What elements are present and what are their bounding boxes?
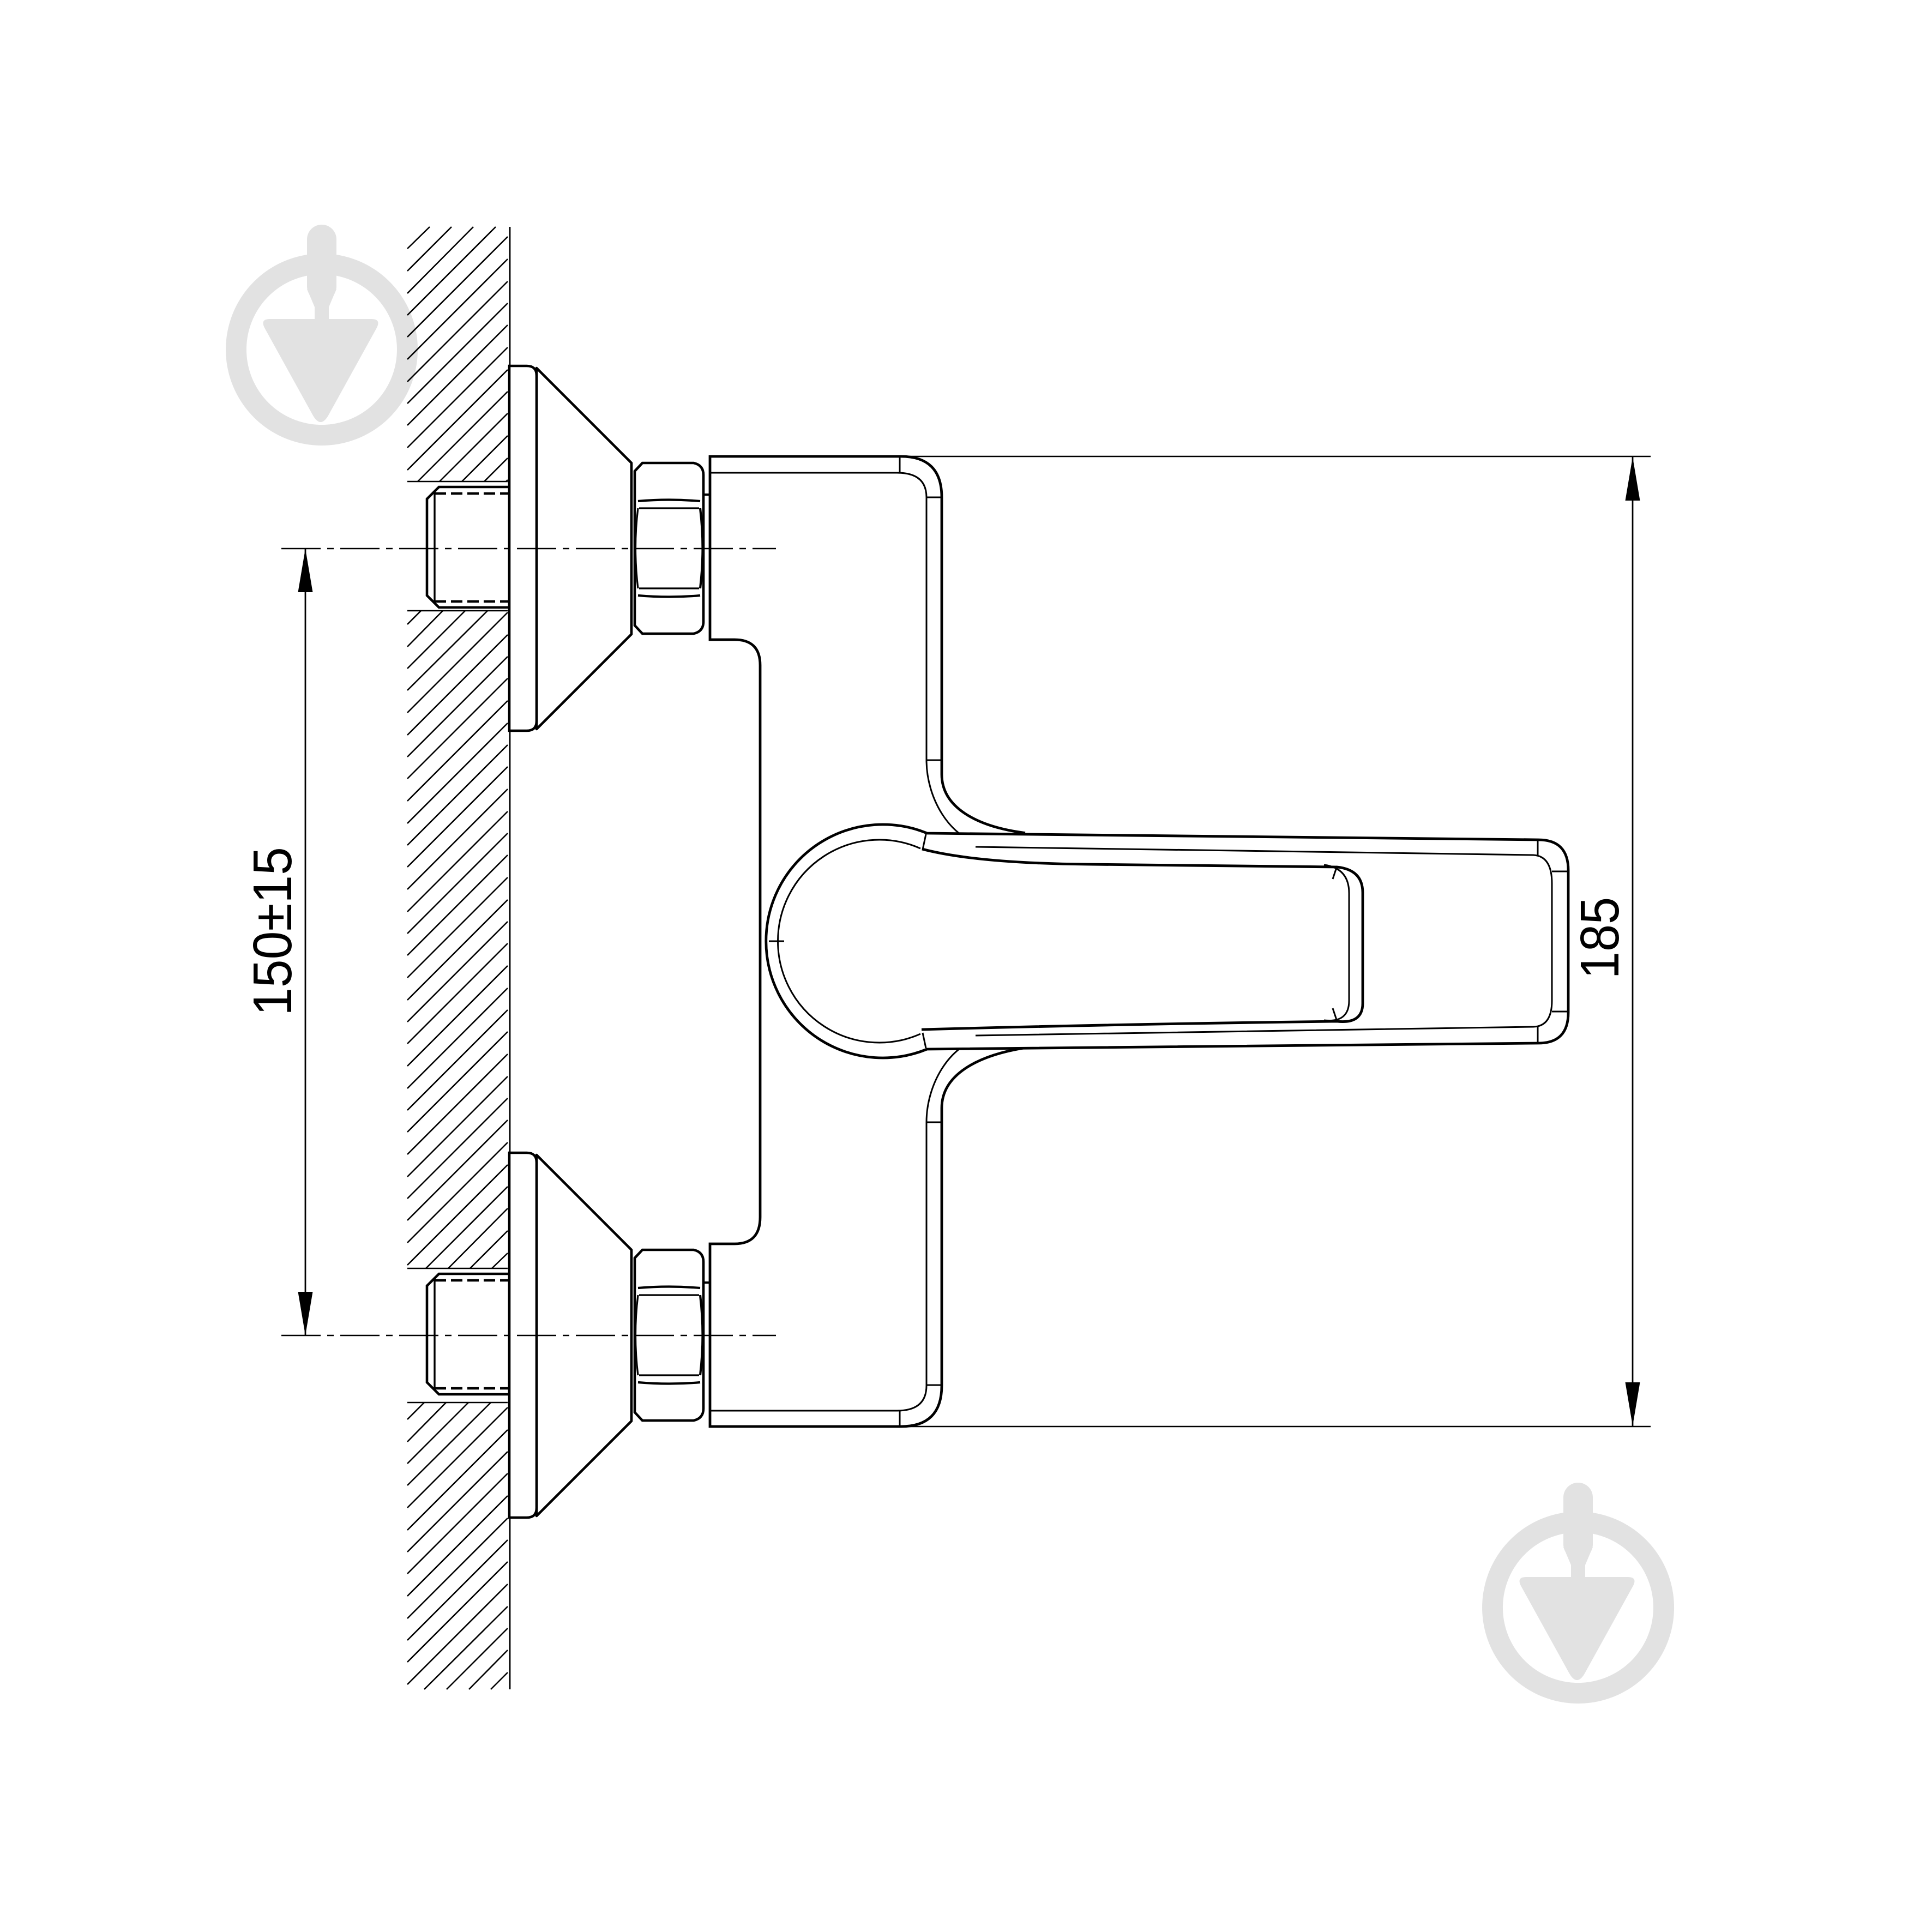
svg-text:150±15: 150±15 [243,847,303,1016]
svg-text:185: 185 [1570,897,1630,979]
